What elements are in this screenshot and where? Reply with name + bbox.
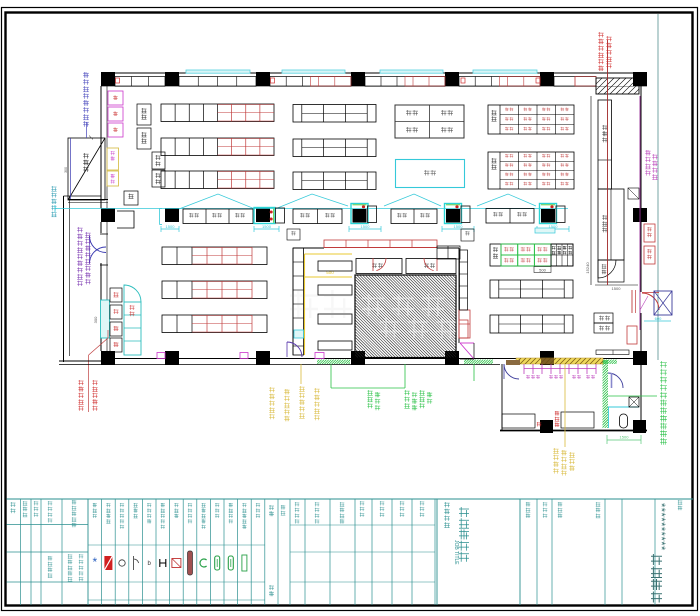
svg-text:JOB TITLE: JOB TITLE — [453, 540, 459, 565]
svg-text:1500: 1500 — [454, 224, 464, 229]
svg-text:**********: ********** — [655, 503, 667, 551]
svg-text:1500: 1500 — [612, 286, 622, 291]
svg-text:500: 500 — [539, 268, 546, 273]
svg-text:1500: 1500 — [166, 224, 176, 229]
svg-text:1500: 1500 — [361, 224, 371, 229]
svg-text:1500: 1500 — [262, 224, 272, 229]
svg-text:600: 600 — [655, 316, 662, 321]
svg-text:*: * — [92, 555, 97, 569]
svg-text:1500: 1500 — [620, 435, 630, 440]
svg-text:300: 300 — [93, 316, 98, 323]
svg-text:300: 300 — [64, 167, 68, 173]
svg-text:15240: 15240 — [585, 262, 590, 274]
